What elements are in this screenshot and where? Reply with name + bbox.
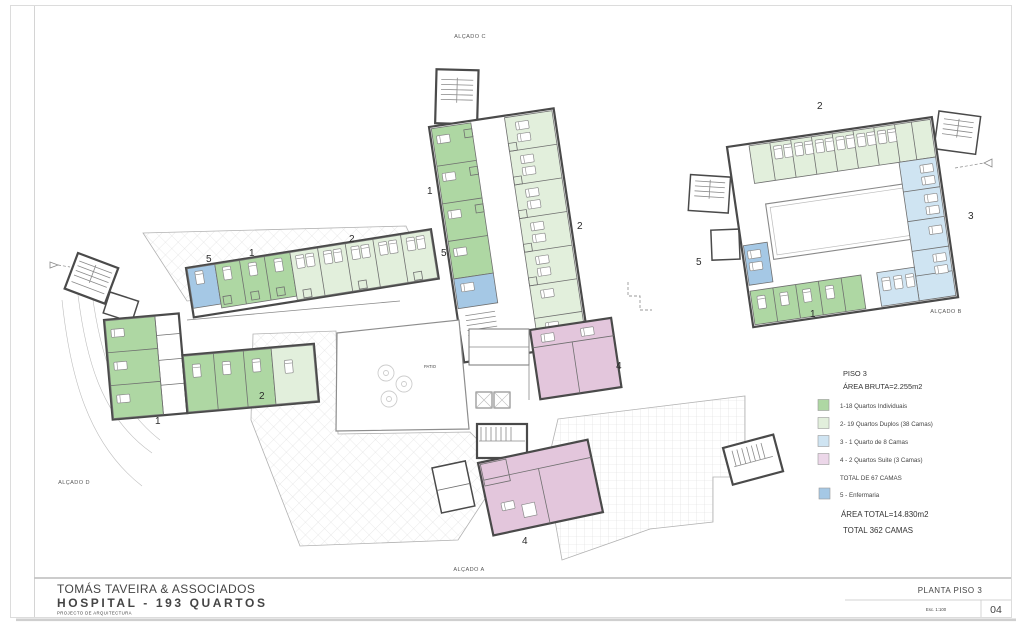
legend-swatch-duplos [818, 418, 829, 429]
legend-item-suite: 4 - 2 Quartos Suite (3 Camas) [840, 457, 923, 464]
legend-total-beds-building: TOTAL 362 CAMAS [843, 526, 913, 535]
suite-room-mid [530, 318, 621, 399]
stair-tower-east-left [688, 175, 730, 214]
marker-individuais: 1 [427, 186, 433, 197]
scale-label: Esc. 1:100 [926, 607, 947, 612]
patio-court: PATIO [336, 320, 469, 431]
floor-plan-svg: PATIO [0, 0, 1024, 630]
elevation-label-a: ALÇADO A [453, 567, 484, 573]
annex-east-left [711, 229, 740, 260]
marker-enfermaria: 5 [441, 248, 447, 259]
room-enfermaria-north [454, 273, 498, 309]
marker-duplos: 2 [817, 101, 823, 112]
marker-individuais: 1 [810, 309, 816, 320]
legend-item-duplos: 2- 19 Quartos Duplos (38 Camas) [840, 421, 933, 428]
legend-item-individuais: 1-18 Quartos Individuais [840, 403, 907, 410]
sheet-number: 04 [990, 604, 1002, 616]
room-duplo-sw [271, 345, 318, 404]
marker-duplos: 2 [259, 391, 265, 402]
legend-item-enfermaria: 5 - Enfermaria [840, 492, 880, 499]
legend-item-oito-camas: 3 - 1 Quarto de 8 Camas [840, 439, 908, 446]
marker-enfermaria: 5 [206, 254, 212, 265]
firm-name: TOMÁS TAVEIRA & ASSOCIADOS [57, 581, 255, 596]
stair-tower-north [435, 69, 478, 124]
legend-swatch-oito-camas [818, 436, 829, 447]
rooms-individuais-sw2 [183, 349, 276, 412]
marker-oito-camas: 3 [968, 211, 974, 222]
legend-swatch-enfermaria [819, 488, 830, 499]
marker-enfermaria: 5 [696, 257, 702, 268]
marker-duplos: 2 [577, 221, 583, 232]
patio-label: PATIO [424, 364, 437, 369]
legend-total-beds-floor: TOTAL DE 67 CAMAS [840, 475, 902, 482]
marker-individuais: 1 [155, 416, 161, 427]
discipline-label: PROJECTO DE ARQUITECTURA [57, 611, 132, 616]
project-title: HOSPITAL - 193 QUARTOS [57, 596, 268, 610]
marker-suite: 4 [522, 536, 528, 547]
legend-gross-area: ÁREA BRUTA=2.255m2 [843, 382, 922, 391]
elevation-label-d: ALÇADO D [58, 480, 90, 486]
drawing-sheet: PATIO [0, 0, 1024, 630]
legend-swatch-individuais [818, 400, 829, 411]
stair-tower-east-right [934, 111, 981, 154]
drawing-title: PLANTA PISO 3 [918, 586, 983, 595]
legend-floor: PISO 3 [843, 369, 867, 378]
marker-duplos: 2 [349, 234, 355, 245]
legend-swatch-suite [818, 454, 829, 465]
legend-total-area: ÁREA TOTAL=14.830m2 [841, 510, 929, 519]
marker-suite: 4 [616, 361, 622, 372]
marker-individuais: 1 [249, 248, 255, 259]
elevation-label-c: ALÇADO C [454, 34, 486, 40]
elevation-label-b: ALÇADO B [930, 309, 962, 315]
